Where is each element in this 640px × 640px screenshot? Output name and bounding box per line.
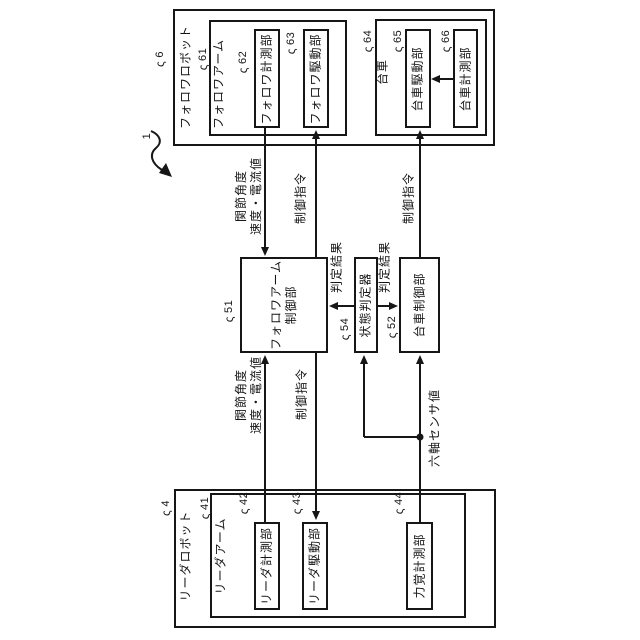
ref-number: 61 (197, 48, 209, 61)
cart-meas-label: 台車計測部 (458, 46, 473, 111)
state-judge-label: 状態判定器 (359, 272, 374, 337)
ref-number: 63 (285, 32, 297, 45)
lead-line-squiggle: ς (338, 334, 352, 340)
force-meas-box: 力覚計測部 (406, 522, 433, 610)
lead-line-squiggle: ς (196, 64, 210, 70)
lead-line-squiggle: ς (391, 46, 405, 52)
flow-label-six-axis-sensor: 六軸センサ値 (428, 389, 443, 467)
ref-41: ς41 (197, 497, 211, 520)
flow-label-ctrl-cmd-follower: 制御指令 (294, 172, 309, 224)
leader-meas-label: リーダ計測部 (260, 527, 275, 605)
ref-number: 4 (160, 500, 172, 507)
ref-4: ς4 (158, 500, 172, 516)
ref-system-1: 1 (141, 133, 153, 140)
ref-number: 52 (386, 316, 398, 329)
arrow-cart-ctrl-to-cart-drive (416, 130, 424, 257)
lead-line-squiggle: ς (222, 316, 236, 322)
lead-line-squiggle: ς (237, 508, 251, 514)
arrow-state-judge-to-cart-ctrl (378, 302, 398, 310)
system-ref-squiggle-arrow (151, 131, 172, 177)
force-meas-label: 力覚計測部 (412, 533, 427, 598)
ref-number: 44 (393, 492, 405, 505)
ref-number: 43 (291, 492, 303, 505)
lead-line-squiggle: ς (439, 46, 453, 52)
ref-number: 42 (238, 492, 250, 505)
lead-line-squiggle: ς (153, 61, 167, 67)
arrow-arm-ctrl-to-follower-drive (312, 130, 320, 257)
leader-drive-label: リーダ駆動部 (308, 527, 323, 605)
cart-label: 台車 (376, 59, 391, 85)
lead-line-squiggle: ς (236, 67, 250, 73)
ref-number: 1 (141, 133, 153, 140)
cart-ctrl-label: 台車制御部 (412, 272, 427, 337)
ref-65: ς65 (390, 30, 404, 53)
leader-robot-label: リーダロボット (179, 510, 194, 601)
lead-line-squiggle: ς (361, 46, 375, 52)
cart-meas-box: 台車計測部 (453, 29, 478, 128)
flow-label-ctrl-cmd-cart: 制御指令 (402, 172, 417, 224)
ref-number: 51 (223, 300, 235, 313)
leader-drive-box: リーダ駆動部 (302, 522, 328, 610)
ref-51: ς51 (221, 300, 235, 323)
ref-number: 66 (440, 30, 452, 43)
follower-arm-label: フォロワアーム (212, 39, 227, 129)
ref-52: ς52 (384, 316, 398, 339)
cart-ctrl-box: 台車制御部 (399, 257, 440, 353)
flow-label-joint-state-upper: 関節角度 速度・電流値 (234, 157, 264, 235)
state-judge-box: 状態判定器 (354, 257, 378, 353)
arrow-state-judge-to-arm-ctrl (329, 302, 354, 310)
cart-drive-label: 台車駆動部 (411, 46, 426, 111)
ref-64: ς64 (360, 30, 374, 53)
patent-block-diagram: 1 フォロワロボット ς6 フォロワアーム ς61 フォロワ計測部 ς62 フォ… (0, 0, 640, 640)
flow-label-judge-result-right: 判定結果 (378, 241, 393, 293)
arrow-force-meas-branch-to-state-judge (360, 355, 420, 437)
ref-6: ς6 (152, 51, 166, 67)
ref-66: ς66 (438, 30, 452, 53)
ref-43: ς43 (289, 492, 303, 515)
ref-61: ς61 (195, 48, 209, 71)
lead-line-squiggle: ς (198, 513, 212, 519)
ref-54: ς54 (337, 318, 351, 341)
lead-line-squiggle: ς (284, 48, 298, 54)
ref-number: 54 (339, 318, 351, 331)
follower-drive-box: フォロワ駆動部 (303, 29, 329, 128)
ref-number: 64 (362, 30, 374, 43)
lead-line-squiggle: ς (159, 510, 173, 516)
follower-drive-label: フォロワ駆動部 (309, 33, 324, 124)
ref-number: 6 (154, 51, 166, 58)
follower-meas-label: フォロワ計測部 (260, 33, 275, 124)
ref-42: ς42 (236, 492, 250, 515)
lead-line-squiggle: ς (290, 508, 304, 514)
ref-62: ς62 (235, 51, 249, 74)
flow-label-joint-state-lower: 関節角度 速度・電流値 (234, 356, 264, 434)
follower-meas-box: フォロワ計測部 (254, 29, 280, 128)
lead-line-squiggle: ς (392, 508, 406, 514)
ref-number: 41 (199, 497, 211, 510)
ref-63: ς63 (283, 32, 297, 55)
ref-number: 65 (392, 30, 404, 43)
lead-line-squiggle: ς (385, 332, 399, 338)
leader-meas-box: リーダ計測部 (254, 522, 280, 610)
flow-label-judge-result-left: 判定結果 (330, 241, 345, 293)
ref-number: 62 (237, 51, 249, 64)
follower-arm-ctrl-box: フォロワアーム 制御部 (240, 257, 328, 353)
follower-arm-ctrl-label: フォロワアーム 制御部 (269, 260, 299, 350)
leader-arm-label: リーダアーム (214, 518, 229, 595)
flow-label-ctrl-cmd-leader: 制御指令 (295, 368, 310, 420)
ref-44: ς44 (391, 492, 405, 515)
cart-drive-box: 台車駆動部 (405, 29, 431, 128)
follower-robot-label: フォロワロボット (179, 25, 194, 129)
